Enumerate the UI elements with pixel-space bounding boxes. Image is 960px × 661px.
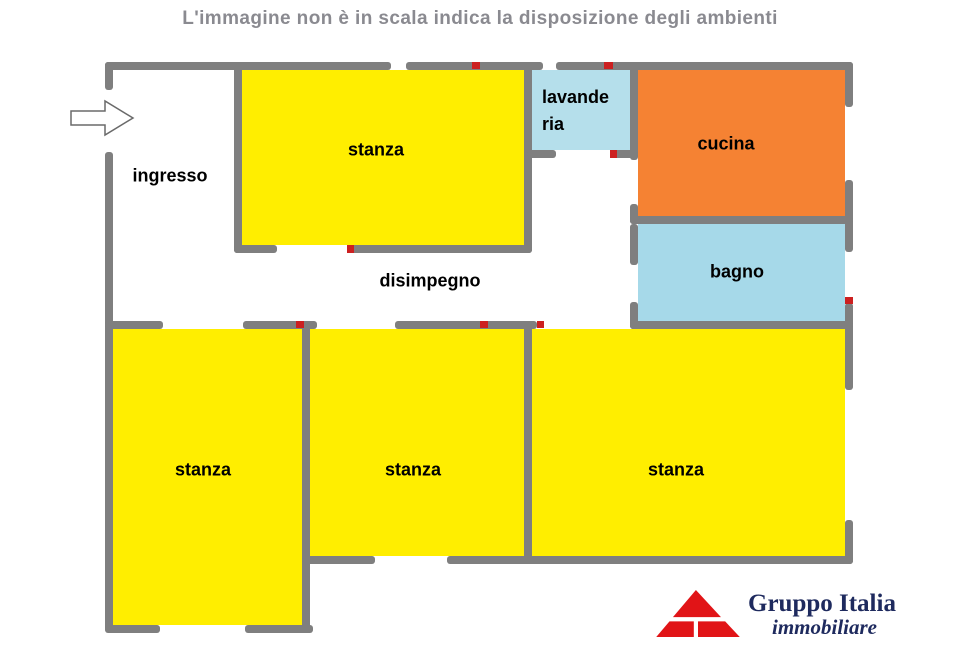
wall-segment [556, 62, 853, 70]
logo-pyramid-top [673, 590, 721, 617]
wall-segment [234, 245, 277, 253]
room-label-cucina: cucina [697, 134, 754, 155]
lavanderia-line2: ria [542, 111, 609, 138]
logo-pyramid-right [698, 621, 740, 637]
wall-segment [527, 150, 556, 158]
wall-segment [395, 321, 537, 329]
room-label-bagno: bagno [710, 262, 764, 283]
room-label-ingresso: ingresso [132, 166, 207, 187]
wall-segment [105, 321, 163, 329]
door-marker [604, 62, 613, 69]
logo-pyramid-left [656, 621, 694, 637]
entrance-arrow-shape [71, 101, 133, 135]
door-marker [296, 321, 304, 328]
door-marker [537, 321, 544, 328]
wall-segment [243, 321, 317, 329]
agency-logo-pyramid-icon [656, 590, 740, 637]
room-label-lavanderia: lavande ria [542, 84, 609, 138]
wall-segment [105, 152, 113, 632]
door-marker [610, 150, 617, 158]
wall-segment [245, 625, 313, 633]
wall-segment [347, 245, 532, 253]
wall-segment [630, 321, 853, 329]
wall-segment [630, 62, 638, 160]
wall-segment [630, 224, 638, 265]
disclaimer-title: L'immagine non è in scala indica la disp… [0, 8, 960, 30]
agency-name: Gruppo Italia [748, 590, 896, 618]
room-label-stanza-bottom-left: stanza [175, 460, 231, 481]
wall-segment [105, 625, 160, 633]
door-marker [472, 62, 480, 69]
entrance-arrow-icon [70, 98, 136, 138]
wall-segment [845, 303, 853, 390]
floorplan-canvas: L'immagine non è in scala indica la disp… [0, 0, 960, 661]
wall-segment [447, 556, 853, 564]
room-label-stanza-bottom-middle: stanza [385, 460, 441, 481]
door-marker [845, 297, 853, 304]
room-label-stanza-bottom-right: stanza [648, 460, 704, 481]
wall-segment [105, 62, 391, 70]
wall-segment [234, 62, 242, 253]
wall-segment [302, 321, 310, 632]
wall-segment [524, 321, 532, 564]
agency-tagline: immobiliare [772, 615, 877, 640]
room-label-disimpegno: disimpegno [379, 271, 480, 292]
room-label-stanza-top: stanza [348, 140, 404, 161]
wall-segment [630, 216, 853, 224]
wall-segment [302, 556, 375, 564]
room-stanza-bottom-middle [310, 329, 524, 556]
lavanderia-line1: lavande [542, 84, 609, 111]
room-stanza-bottom-right [532, 329, 845, 556]
door-marker [480, 321, 488, 328]
door-marker [347, 245, 354, 253]
